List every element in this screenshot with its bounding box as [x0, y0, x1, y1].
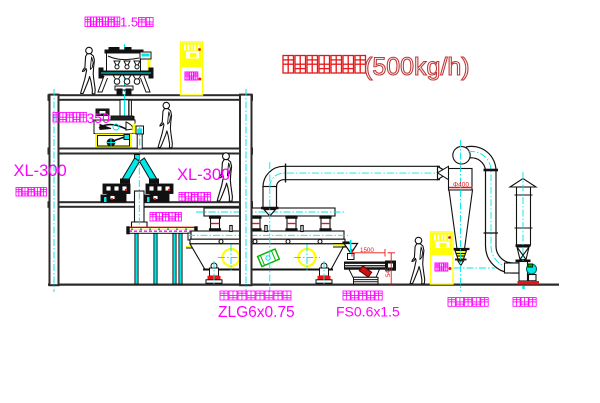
svg-text:ZLG6x0.75: ZLG6x0.75 [218, 304, 295, 321]
svg-text:Φ400: Φ400 [453, 182, 469, 189]
svg-text:(500kg/h): (500kg/h) [364, 53, 470, 81]
svg-text:350: 350 [87, 110, 111, 126]
svg-text:XL-300: XL-300 [14, 162, 67, 180]
svg-text:1500: 1500 [360, 247, 374, 254]
svg-text:545: 545 [386, 266, 392, 277]
svg-text:FS0.6x1.5: FS0.6x1.5 [336, 304, 400, 320]
svg-text:XL-300: XL-300 [177, 166, 230, 184]
svg-text:1.5: 1.5 [120, 15, 138, 30]
